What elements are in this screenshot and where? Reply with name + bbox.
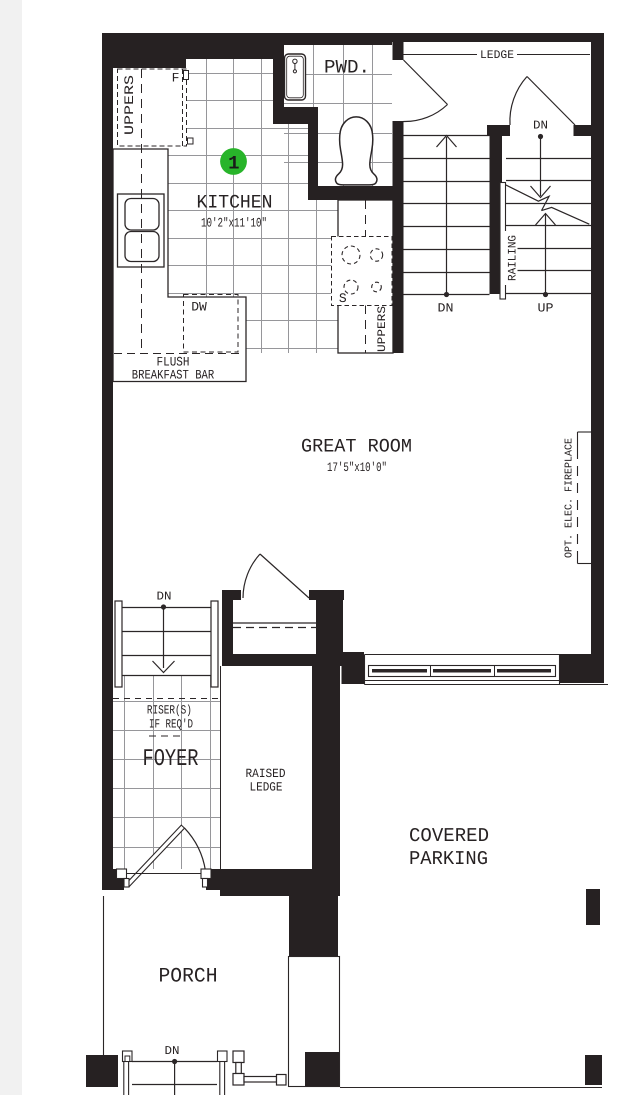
svg-text:RAISED: RAISED — [246, 767, 286, 781]
svg-text:OPT. ELEC. FIREPLACE: OPT. ELEC. FIREPLACE — [564, 438, 576, 558]
svg-text:RAILING: RAILING — [507, 235, 520, 281]
svg-text:UPPERS: UPPERS — [122, 75, 137, 135]
svg-text:PARKING: PARKING — [409, 848, 488, 870]
svg-text:UPPERS: UPPERS — [376, 306, 389, 352]
svg-text:DN: DN — [533, 119, 548, 133]
svg-text:COVERED: COVERED — [409, 825, 489, 847]
svg-text:PWD.: PWD. — [324, 57, 370, 79]
svg-text:S: S — [339, 291, 347, 306]
svg-text:17'5"x10'0": 17'5"x10'0" — [327, 460, 387, 475]
svg-text:1: 1 — [228, 152, 239, 174]
svg-text:RISER(S): RISER(S) — [147, 703, 192, 717]
svg-text:DW: DW — [191, 300, 207, 315]
svg-text:BREAKFAST BAR: BREAKFAST BAR — [132, 368, 215, 383]
svg-text:LEDGE: LEDGE — [480, 49, 514, 62]
svg-text:F: F — [172, 71, 180, 86]
svg-text:LEDGE: LEDGE — [250, 781, 283, 795]
svg-text:PORCH: PORCH — [159, 966, 218, 989]
svg-text:DN: DN — [165, 1044, 180, 1058]
svg-text:10'2"x11'10": 10'2"x11'10" — [201, 215, 267, 230]
svg-text:UP: UP — [538, 302, 554, 316]
svg-text:GREAT ROOM: GREAT ROOM — [301, 436, 412, 458]
svg-text:DN: DN — [438, 302, 454, 316]
svg-text:KITCHEN: KITCHEN — [197, 191, 273, 213]
svg-text:FOYER: FOYER — [143, 746, 199, 773]
svg-text:IF REQ'D: IF REQ'D — [149, 718, 193, 732]
svg-text:DN: DN — [157, 590, 172, 604]
